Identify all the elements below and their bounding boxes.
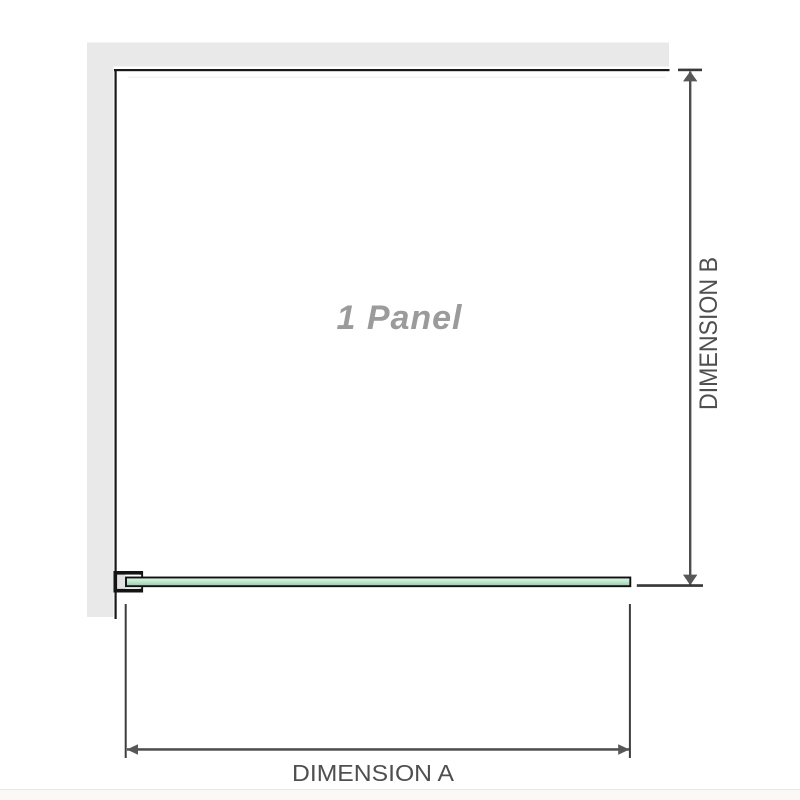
svg-text:DIMENSION B: DIMENSION B: [695, 257, 723, 410]
svg-text:1 Panel: 1 Panel: [337, 299, 464, 337]
svg-text:DIMENSION A: DIMENSION A: [292, 760, 455, 786]
